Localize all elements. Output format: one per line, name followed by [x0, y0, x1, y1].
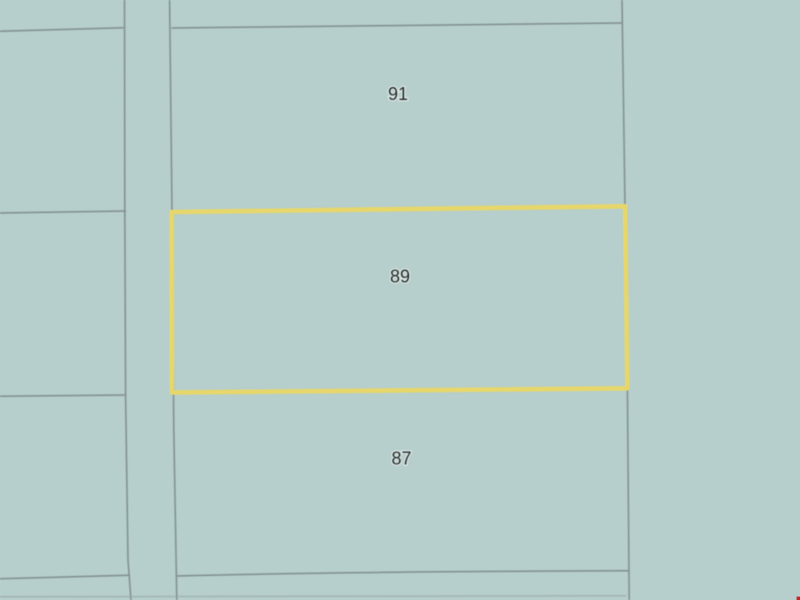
- svg-text:91: 91: [388, 84, 408, 104]
- svg-text:89: 89: [390, 267, 410, 287]
- svg-text:87: 87: [391, 449, 411, 469]
